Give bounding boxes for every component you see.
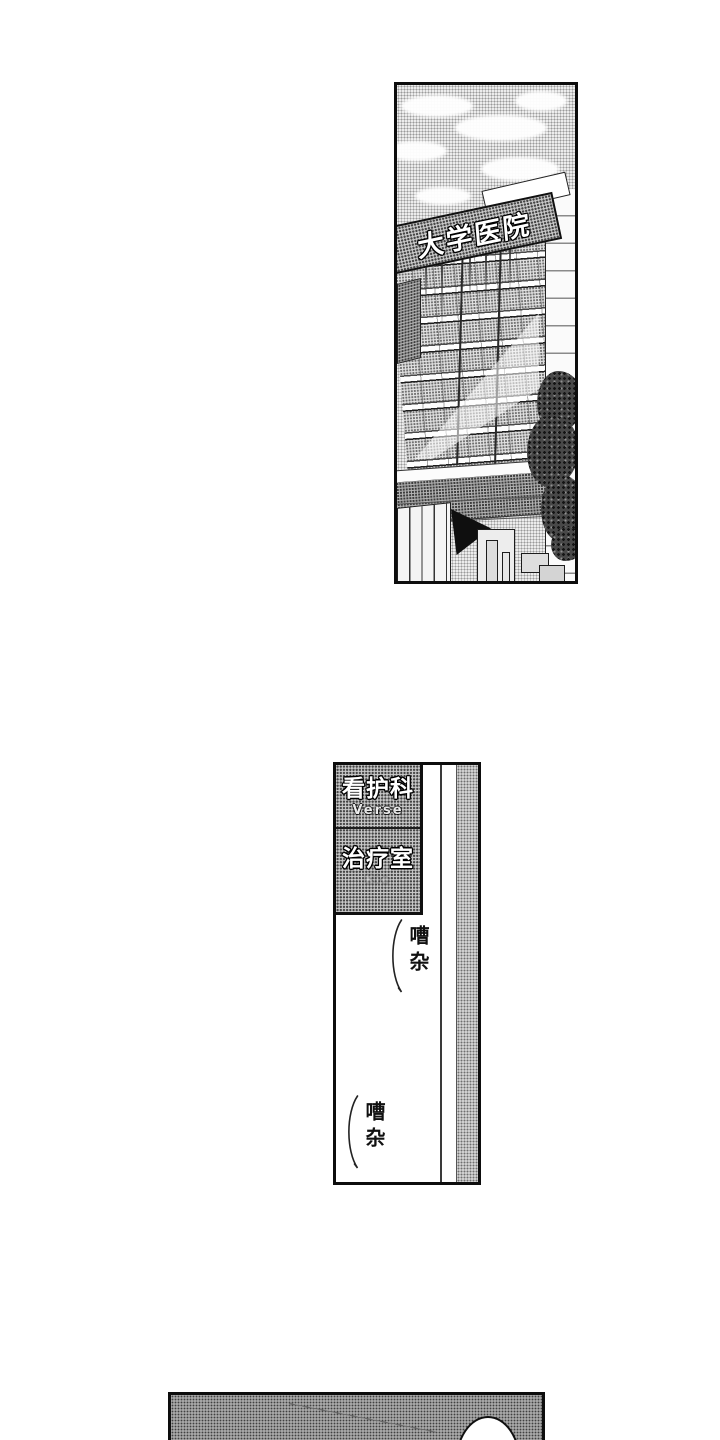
nursing-dept-subtitle: Verse [336, 803, 420, 818]
sfx-noise-text: 嘈杂 [404, 925, 433, 977]
tree-foliage [551, 527, 578, 561]
entrance-door [477, 529, 515, 584]
head-silhouette [455, 1416, 521, 1440]
corridor-wall-edge [440, 765, 442, 1182]
sfx-noise: 嘈杂 [388, 917, 433, 997]
entrance-wall [397, 502, 451, 584]
sfx-noise-text: 嘈杂 [360, 1101, 389, 1153]
panel-bottom-partial [168, 1392, 545, 1440]
door-panel [502, 552, 510, 584]
cloud [515, 91, 567, 111]
department-sign-board: 看护科 Verse 治疗室 Kie [336, 765, 423, 915]
wall-streak [509, 247, 511, 293]
tree-foliage [527, 415, 578, 487]
sfx-noise: 嘈杂 [344, 1093, 389, 1173]
treatment-room-subtitle: Kie [336, 873, 420, 886]
manga-page: 大学医院 看护科 Verse [0, 0, 720, 1440]
panel-corridor: 看护科 Verse 治疗室 Kie 嘈杂 嘈杂 [333, 762, 481, 1185]
treatment-room-label: 治疗室 [336, 839, 420, 873]
tree [527, 371, 578, 557]
cloud [394, 141, 447, 161]
sfx-bracket-icon [344, 1093, 359, 1173]
corridor-wall-shading [457, 765, 478, 1182]
door-panel [486, 540, 498, 584]
panel-hospital-exterior: 大学医院 [394, 82, 578, 584]
wall-streak [485, 251, 487, 313]
wall-streak [469, 253, 471, 303]
entrance-planter [539, 565, 565, 583]
background-line [289, 1403, 437, 1433]
building-left-wing [397, 278, 421, 364]
cloud [455, 115, 547, 141]
wall-streak [441, 261, 443, 331]
sfx-bracket-icon [388, 917, 403, 997]
sign-divider [336, 827, 420, 829]
cloud [415, 187, 471, 205]
nursing-dept-label: 看护科 [336, 769, 420, 803]
cloud [401, 95, 473, 117]
